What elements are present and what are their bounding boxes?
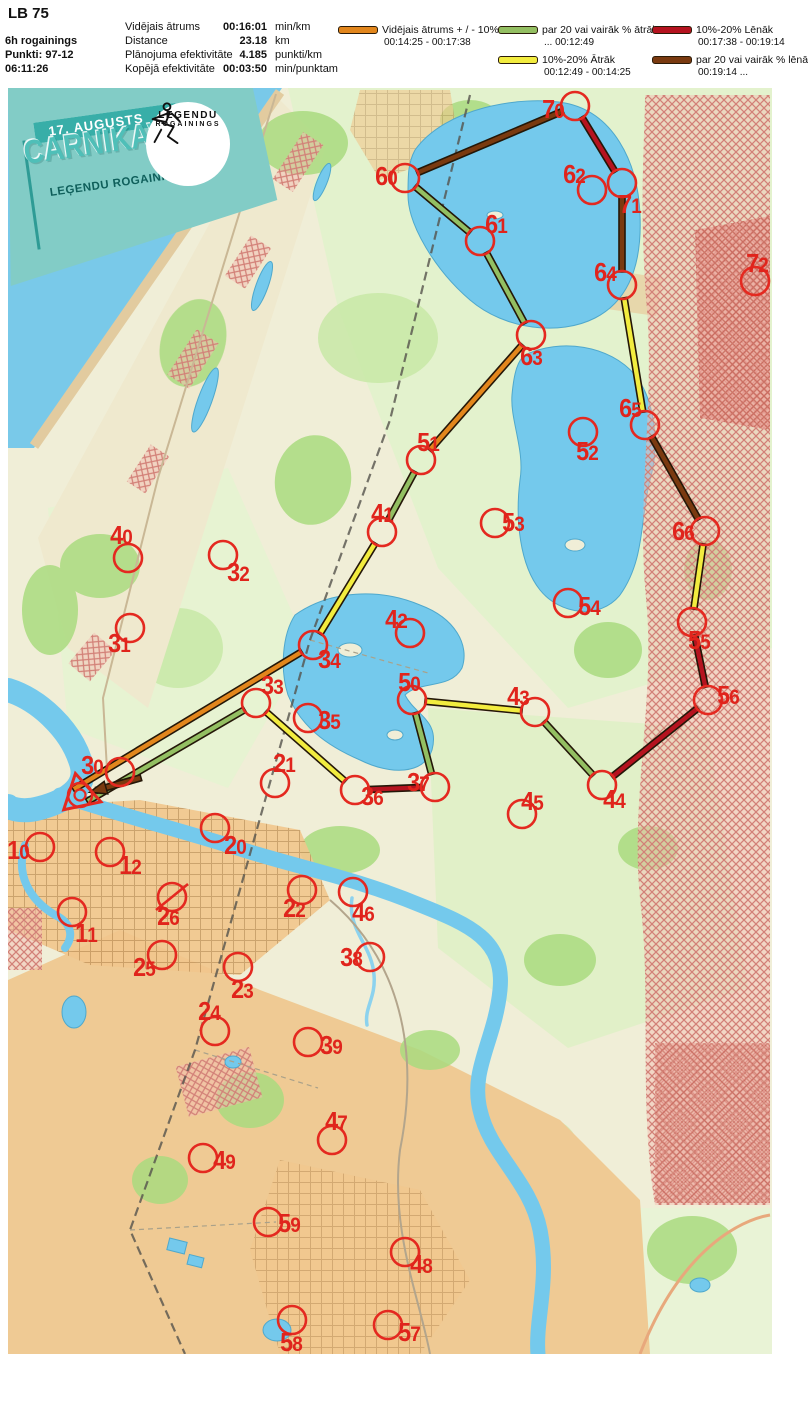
control-number: 39 xyxy=(320,1032,343,1060)
control-number: 36 xyxy=(361,783,384,811)
control-46: 46 xyxy=(339,878,375,927)
control-number: 32 xyxy=(227,559,250,587)
control-65: 65 xyxy=(619,395,659,439)
control-37: 37 xyxy=(407,769,449,801)
route-leg-66-55 xyxy=(694,547,702,606)
control-43: 43 xyxy=(507,683,549,726)
control-23: 23 xyxy=(224,953,254,1004)
route-leg-50-37 xyxy=(416,715,431,771)
control-number: 46 xyxy=(352,899,375,927)
control-number: 12 xyxy=(119,852,142,880)
control-number: 62 xyxy=(563,161,586,189)
control-39: 39 xyxy=(294,1028,343,1060)
control-63: 63 xyxy=(517,321,545,371)
control-56: 56 xyxy=(694,682,740,714)
control-66: 66 xyxy=(672,517,719,546)
route-leg-64-65 xyxy=(625,301,643,409)
control-number: 41 xyxy=(371,500,394,528)
control-47: 47 xyxy=(318,1108,348,1154)
legend-chip-slow20 xyxy=(652,56,692,64)
control-53: 53 xyxy=(481,509,525,537)
control-52: 52 xyxy=(569,418,599,466)
stat-label: Vidējais ātrums xyxy=(125,21,200,33)
control-number: 42 xyxy=(385,606,408,634)
control-number: 56 xyxy=(717,682,740,710)
control-number: 43 xyxy=(507,683,530,711)
control-70: 70 xyxy=(542,92,589,124)
control-number: 63 xyxy=(520,343,543,371)
control-number: 49 xyxy=(213,1147,236,1175)
control-33: 33 xyxy=(242,672,284,717)
control-49: 49 xyxy=(189,1144,236,1175)
control-10: 10 xyxy=(8,833,54,865)
control-number: 10 xyxy=(8,837,30,865)
control-57: 57 xyxy=(374,1311,421,1347)
control-number: 47 xyxy=(325,1108,348,1136)
control-number: 70 xyxy=(542,96,565,124)
stat-value: 4.185 xyxy=(205,49,267,61)
organizer-badge: LEĢENDU ROGAININGS xyxy=(146,102,230,186)
control-42: 42 xyxy=(385,606,424,647)
control-55: 55 xyxy=(678,608,711,655)
stat-unit: punkti/km xyxy=(275,49,322,61)
control-number: 24 xyxy=(198,998,221,1026)
event-duration: 6h rogainings xyxy=(5,35,77,47)
control-71: 71 xyxy=(608,169,642,219)
control-34: 34 xyxy=(299,631,341,674)
control-72: 72 xyxy=(741,250,769,295)
route-and-controls-overlay: 1011122021222324252630313233343536373839… xyxy=(8,88,772,1354)
legend-chip-fast20 xyxy=(498,26,538,34)
route-leg-43-50 xyxy=(428,702,519,711)
control-22: 22 xyxy=(283,876,316,923)
control-number: 53 xyxy=(502,509,525,537)
control-number: 61 xyxy=(485,211,508,239)
control-number: 64 xyxy=(594,259,617,287)
control-number: 48 xyxy=(410,1251,433,1279)
control-number: 35 xyxy=(318,707,341,735)
control-number: 21 xyxy=(273,750,296,778)
control-48: 48 xyxy=(391,1238,433,1279)
controls-layer: 1011122021222324252630313233343536373839… xyxy=(8,92,769,1354)
control-51: 51 xyxy=(407,429,440,474)
control-44: 44 xyxy=(588,771,626,814)
control-number: 66 xyxy=(672,518,695,546)
route-leg-63-61 xyxy=(488,255,524,321)
control-number: 55 xyxy=(688,627,711,655)
stat-value: 23.18 xyxy=(205,35,267,47)
runner-icon xyxy=(146,102,186,144)
control-number: 20 xyxy=(224,832,247,860)
control-45: 45 xyxy=(508,788,544,828)
page-title: LB 75 xyxy=(8,5,49,22)
legend-label: par 20 vai vairāk % ātrāk xyxy=(542,24,658,36)
control-35: 35 xyxy=(294,704,341,735)
route-leg-51-63 xyxy=(432,347,521,448)
control-60: 60 xyxy=(375,163,419,192)
control-number: 44 xyxy=(603,786,626,814)
control-40: 40 xyxy=(110,522,142,572)
route-leg-65-66 xyxy=(653,439,697,517)
legend-label: 10%-20% Lēnāk xyxy=(696,24,773,36)
legend-label: par 20 vai vairāk % lēnāk xyxy=(696,54,808,66)
route-leg-41-51 xyxy=(390,474,414,518)
total-time: 06:11:26 xyxy=(5,63,48,75)
legend-chip-slow10 xyxy=(652,26,692,34)
route-leg-70-71 xyxy=(583,120,613,170)
legend-range: 00:17:38 - 00:19:14 xyxy=(652,37,808,48)
control-number: 33 xyxy=(261,672,284,700)
control-number: 71 xyxy=(619,191,642,219)
control-11: 11 xyxy=(58,898,98,948)
control-number: 58 xyxy=(280,1329,303,1354)
legend-range: 00:19:14 ... xyxy=(652,67,808,78)
control-64: 64 xyxy=(594,259,636,299)
stat-value: 00:03:50 xyxy=(205,63,267,75)
control-number: 72 xyxy=(746,250,769,278)
control-number: 60 xyxy=(375,163,398,191)
control-number: 65 xyxy=(619,395,642,423)
control-number: 51 xyxy=(417,429,440,457)
control-number: 23 xyxy=(231,976,254,1004)
legend-label: 10%-20% Ātrāk xyxy=(542,54,615,66)
control-38: 38 xyxy=(340,943,384,972)
control-20: 20 xyxy=(201,814,247,860)
points-summary: Punkti: 97-12 xyxy=(5,49,73,61)
legend-entry-slow20: par 20 vai vairāk % lēnāk 00:19:14 ... xyxy=(652,54,808,78)
control-number: 26 xyxy=(157,903,180,931)
map: 1011122021222324252630313233343536373839… xyxy=(8,88,772,1354)
control-12: 12 xyxy=(96,838,142,880)
legend-label: Vidējais ātrums + / - 10% xyxy=(382,24,499,36)
stat-unit: min/punktam xyxy=(275,63,338,75)
control-number: 50 xyxy=(398,669,421,697)
legend-entry-slow10: 10%-20% Lēnāk 00:17:38 - 00:19:14 xyxy=(652,24,808,48)
control-25: 25 xyxy=(133,941,176,982)
legend-chip-fast10 xyxy=(498,56,538,64)
control-31: 31 xyxy=(108,614,144,658)
control-number: 57 xyxy=(398,1319,421,1347)
control-number: 22 xyxy=(283,895,306,923)
control-61: 61 xyxy=(466,211,508,255)
control-number: 38 xyxy=(340,944,363,972)
route-leg-44-43 xyxy=(546,724,591,773)
control-24: 24 xyxy=(198,998,229,1045)
control-26: 26 xyxy=(156,883,188,931)
control-number: 40 xyxy=(110,522,133,550)
control-number: 52 xyxy=(576,438,599,466)
control-54: 54 xyxy=(554,589,601,621)
control-number: 34 xyxy=(318,646,341,674)
control-number: 30 xyxy=(81,752,104,780)
stat-unit: km xyxy=(275,35,290,47)
control-number: 37 xyxy=(407,769,430,797)
stat-value: 00:16:01 xyxy=(205,21,267,33)
control-58: 58 xyxy=(278,1306,306,1354)
control-number: 59 xyxy=(278,1210,301,1238)
route-leg-61-60 xyxy=(417,188,467,230)
stat-unit: min/km xyxy=(275,21,310,33)
route-leg-60-70 xyxy=(420,112,561,172)
control-50: 50 xyxy=(398,669,426,714)
control-62: 62 xyxy=(563,161,606,204)
route-leg-34-41 xyxy=(321,546,373,632)
control-32: 32 xyxy=(209,541,250,587)
control-number: 31 xyxy=(108,630,131,658)
legend-chip-average xyxy=(338,26,378,34)
control-41: 41 xyxy=(368,500,396,546)
control-59: 59 xyxy=(254,1208,301,1238)
control-number: 54 xyxy=(578,593,601,621)
route-leg-56-44 xyxy=(614,710,695,775)
control-number: 25 xyxy=(133,954,156,982)
control-number: 11 xyxy=(75,920,98,948)
control-21: 21 xyxy=(261,750,296,797)
control-number: 45 xyxy=(521,788,544,816)
control-36: 36 xyxy=(341,776,384,811)
stat-label: Kopējā efektivitāte xyxy=(125,63,215,75)
stat-label: Distance xyxy=(125,35,168,47)
